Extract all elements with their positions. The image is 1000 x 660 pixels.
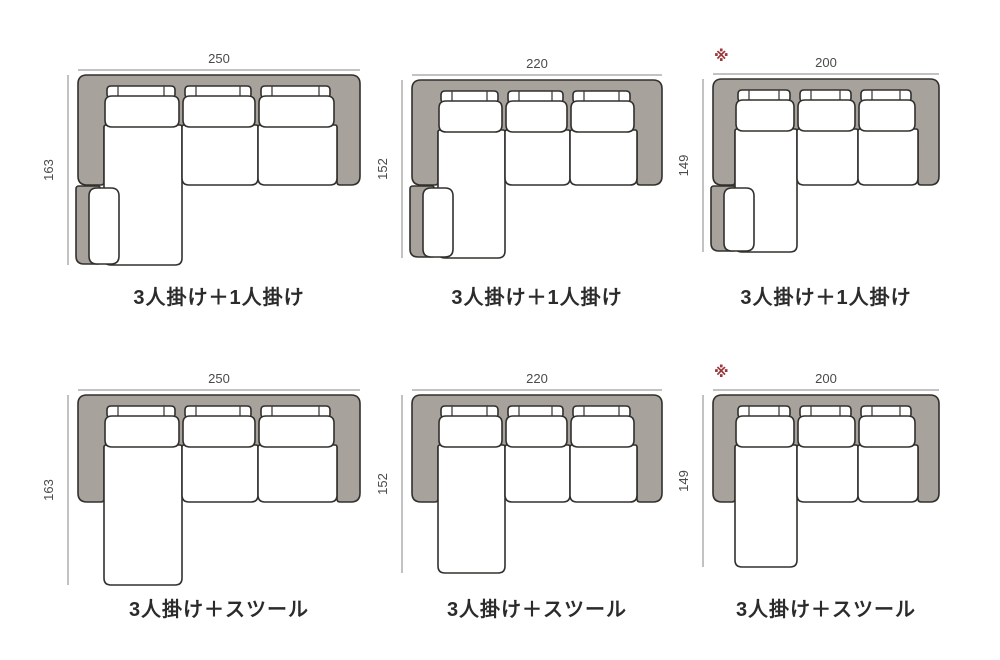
sofa-diagram-4: 2501633人掛け＋スツール xyxy=(41,371,360,621)
seat-body xyxy=(182,445,258,502)
back-cushion xyxy=(105,96,179,127)
diagram-caption: 3人掛け＋スツール xyxy=(736,597,916,621)
stool-seat xyxy=(438,445,505,573)
seat-body xyxy=(858,129,918,185)
seat-body xyxy=(258,125,337,185)
back-cushion xyxy=(506,416,567,447)
layout-diagrams-canvas: 2501633人掛け＋1人掛け2201523人掛け＋1人掛け200149※3人掛… xyxy=(0,0,1000,660)
sofa-diagram-5: 2201523人掛け＋スツール xyxy=(375,371,662,621)
sofa-diagram-1: 2501633人掛け＋1人掛け xyxy=(41,51,360,309)
back-cushion xyxy=(259,416,334,447)
dimension-label-width: 200 xyxy=(815,55,837,70)
back-cushion xyxy=(859,416,915,447)
seat-body xyxy=(570,445,637,502)
seat-body xyxy=(258,445,337,502)
sofa-diagram-2: 2201523人掛け＋1人掛け xyxy=(375,56,662,309)
one-seater-cushion xyxy=(724,188,754,251)
note-reference-mark: ※ xyxy=(714,363,729,381)
dimension-label-height: 149 xyxy=(676,470,691,492)
back-cushion xyxy=(798,100,855,131)
back-cushion xyxy=(736,416,794,447)
stool-seat xyxy=(104,445,182,585)
back-cushion xyxy=(859,100,915,131)
dimension-label-height: 163 xyxy=(41,159,56,181)
seat-body xyxy=(505,445,570,502)
back-cushion xyxy=(183,416,255,447)
note-reference-mark: ※ xyxy=(714,47,729,65)
back-cushion xyxy=(439,416,502,447)
dimension-label-height: 152 xyxy=(375,158,390,180)
diagram-caption: 3人掛け＋1人掛け xyxy=(740,285,911,309)
dimension-label-width: 200 xyxy=(815,371,837,386)
seat-body xyxy=(797,129,858,185)
dimension-label-width: 220 xyxy=(526,371,548,386)
back-cushion xyxy=(571,101,634,132)
back-cushion xyxy=(183,96,255,127)
diagram-caption: 3人掛け＋1人掛け xyxy=(451,285,622,309)
back-cushion xyxy=(798,416,855,447)
diagram-caption: 3人掛け＋スツール xyxy=(129,597,309,621)
dimension-label-width: 250 xyxy=(208,371,230,386)
back-cushion xyxy=(571,416,634,447)
back-cushion xyxy=(736,100,794,131)
one-seater-cushion xyxy=(423,188,453,257)
seat-body xyxy=(858,445,918,502)
dimension-label-height: 163 xyxy=(41,479,56,501)
seat-body xyxy=(505,130,570,185)
diagram-caption: 3人掛け＋1人掛け xyxy=(133,285,304,309)
sofa-diagram-6: 200149※3人掛け＋スツール xyxy=(676,363,939,621)
seat-body xyxy=(570,130,637,185)
seat-body xyxy=(182,125,258,185)
dimension-label-width: 250 xyxy=(208,51,230,66)
one-seater-cushion xyxy=(89,188,119,264)
dimension-label-width: 220 xyxy=(526,56,548,71)
back-cushion xyxy=(259,96,334,127)
stool-seat xyxy=(735,445,797,567)
sofa-layout-page: 2501633人掛け＋1人掛け2201523人掛け＋1人掛け200149※3人掛… xyxy=(0,0,1000,660)
back-cushion xyxy=(506,101,567,132)
back-cushion xyxy=(439,101,502,132)
back-cushion xyxy=(105,416,179,447)
sofa-diagram-3: 200149※3人掛け＋1人掛け xyxy=(676,47,939,309)
diagram-caption: 3人掛け＋スツール xyxy=(447,597,627,621)
dimension-label-height: 152 xyxy=(375,473,390,495)
dimension-label-height: 149 xyxy=(676,155,691,177)
seat-body xyxy=(797,445,858,502)
